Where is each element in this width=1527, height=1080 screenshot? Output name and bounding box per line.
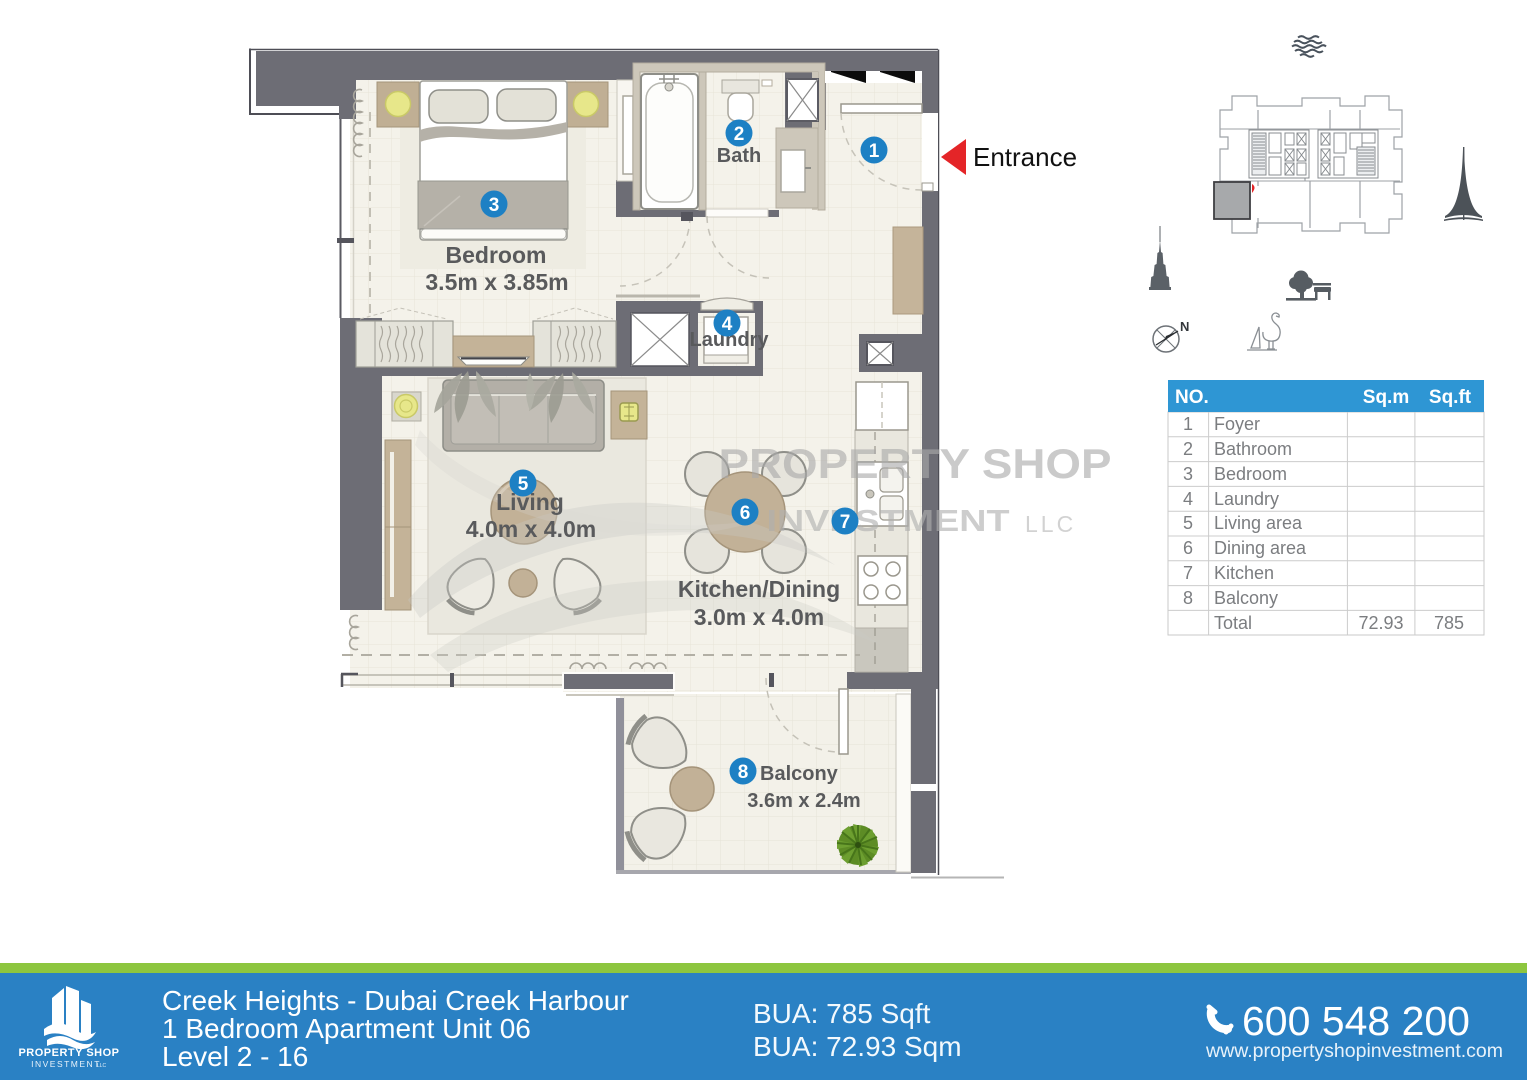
svg-text:Creek Heights - Dubai Creek Ha: Creek Heights - Dubai Creek Harbour (162, 985, 629, 1016)
svg-text:2: 2 (734, 124, 745, 145)
svg-text:Bedroom: Bedroom (1214, 464, 1287, 484)
svg-text:5: 5 (518, 474, 529, 495)
svg-text:Sq.ft: Sq.ft (1429, 387, 1472, 408)
svg-text:3: 3 (489, 195, 500, 216)
svg-text:Bedroom: Bedroom (446, 242, 547, 268)
svg-text:1: 1 (1183, 414, 1193, 434)
svg-text:Bath: Bath (717, 145, 761, 167)
svg-text:Bathroom: Bathroom (1214, 439, 1292, 459)
svg-text:NO.: NO. (1175, 387, 1209, 408)
svg-text:Sq.m: Sq.m (1363, 387, 1409, 408)
svg-text:BUA: 72.93 Sqm: BUA: 72.93 Sqm (753, 1031, 962, 1062)
svg-text:INVESTMENT: INVESTMENT (31, 1059, 101, 1069)
svg-text:Balcony: Balcony (1214, 588, 1278, 608)
svg-text:LLC: LLC (97, 1063, 107, 1069)
svg-text:8: 8 (1183, 588, 1193, 608)
svg-text:Balcony: Balcony (760, 763, 839, 785)
svg-text:Kitchen/Dining: Kitchen/Dining (678, 576, 840, 602)
svg-text:5: 5 (1183, 513, 1193, 533)
svg-text:4: 4 (722, 314, 733, 335)
svg-text:www.propertyshopinvestment.com: www.propertyshopinvestment.com (1205, 1040, 1503, 1062)
svg-text:2: 2 (1183, 439, 1193, 459)
svg-text:6: 6 (740, 503, 751, 524)
svg-text:Living area: Living area (1214, 513, 1303, 533)
svg-text:4.0m x 4.0m: 4.0m x 4.0m (466, 516, 596, 542)
svg-text:PROPERTY SHOP: PROPERTY SHOP (719, 440, 1112, 487)
svg-text:7: 7 (840, 512, 851, 533)
svg-text:72.93: 72.93 (1358, 613, 1403, 633)
svg-text:Entrance: Entrance (973, 142, 1077, 172)
svg-text:Total: Total (1214, 613, 1252, 633)
svg-text:3.0m x 4.0m: 3.0m x 4.0m (694, 604, 824, 630)
svg-text:BUA: 785 Sqft: BUA: 785 Sqft (753, 998, 931, 1029)
svg-text:3.6m x 2.4m: 3.6m x 2.4m (747, 790, 860, 812)
svg-text:Dining area: Dining area (1214, 538, 1307, 558)
svg-text:PROPERTY SHOP: PROPERTY SHOP (18, 1047, 119, 1059)
svg-text:7: 7 (1183, 563, 1193, 583)
svg-text:Laundry: Laundry (1214, 489, 1279, 509)
svg-text:4: 4 (1183, 489, 1193, 509)
svg-text:3: 3 (1183, 464, 1193, 484)
svg-text:1 Bedroom Apartment Unit 06: 1 Bedroom Apartment Unit 06 (162, 1013, 531, 1044)
svg-text:LLC: LLC (1025, 511, 1076, 537)
svg-text:INVESTMENT: INVESTMENT (767, 503, 1010, 538)
svg-text:600 548 200: 600 548 200 (1242, 998, 1470, 1044)
svg-text:6: 6 (1183, 538, 1193, 558)
svg-text:Foyer: Foyer (1214, 414, 1260, 434)
svg-text:3.5m x 3.85m: 3.5m x 3.85m (425, 269, 568, 295)
svg-text:Kitchen: Kitchen (1214, 563, 1274, 583)
svg-text:N: N (1180, 319, 1189, 334)
svg-text:785: 785 (1434, 613, 1464, 633)
svg-text:8: 8 (738, 762, 749, 783)
svg-text:1: 1 (869, 141, 880, 162)
svg-text:Level 2 - 16: Level 2 - 16 (162, 1041, 308, 1072)
